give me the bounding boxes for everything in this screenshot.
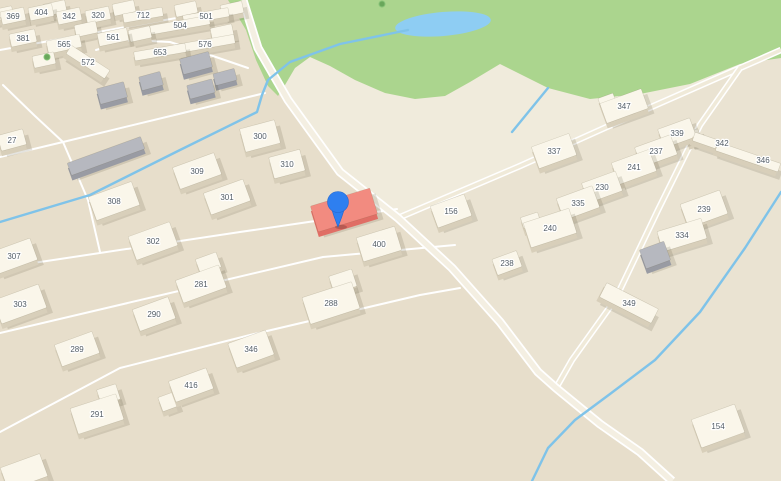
house-number-241: 241 [627,163,641,172]
house-number-561: 561 [106,33,120,42]
house-number-416: 416 [184,381,198,390]
house-number-320: 320 [91,11,105,20]
house-number-342: 342 [62,12,76,21]
house-number-342: 342 [715,139,729,148]
house-number-504: 504 [173,21,187,30]
house-number-281: 281 [194,280,208,289]
map-canvas[interactable]: 3694043423207125015043815655615766535722… [0,0,781,481]
house-number-349: 349 [622,299,636,308]
house-number-346: 346 [756,156,770,165]
house-number-307: 307 [7,252,21,261]
house-number-288: 288 [324,299,338,308]
tree-icon [379,1,385,7]
house-number-381: 381 [16,34,30,43]
house-number-308: 308 [107,197,121,206]
house-number-653: 653 [153,48,167,57]
house-number-347: 347 [617,102,631,111]
house-number-154: 154 [711,422,725,431]
house-number-291: 291 [90,410,104,419]
house-number-238: 238 [500,259,514,268]
house-number-303: 303 [13,300,27,309]
house-number-369: 369 [6,12,20,21]
house-number-309: 309 [190,167,204,176]
house-number-565: 565 [57,40,71,49]
house-number-237: 237 [649,147,663,156]
house-number-572: 572 [81,58,95,67]
house-number-239: 239 [697,205,711,214]
house-number-404: 404 [34,8,48,17]
house-number-400: 400 [372,240,386,249]
house-number-300: 300 [253,132,267,141]
house-number-302: 302 [146,237,160,246]
house-number-501: 501 [199,12,213,21]
house-number-310: 310 [280,160,294,169]
house-number-289: 289 [70,345,84,354]
tree-icon [44,54,50,60]
house-number-230: 230 [595,183,609,192]
house-number-337: 337 [547,147,561,156]
house-number-346: 346 [244,345,258,354]
house-number-240: 240 [543,224,557,233]
house-number-334: 334 [675,231,689,240]
house-number-712: 712 [136,11,150,20]
house-number-290: 290 [147,310,161,319]
map-view[interactable]: 3694043423207125015043815655615766535722… [0,0,781,481]
house-number-27: 27 [8,136,17,145]
house-number-301: 301 [220,193,234,202]
house-number-576: 576 [198,40,212,49]
house-number-339: 339 [670,129,684,138]
house-number-156: 156 [444,207,458,216]
house-number-335: 335 [571,199,585,208]
